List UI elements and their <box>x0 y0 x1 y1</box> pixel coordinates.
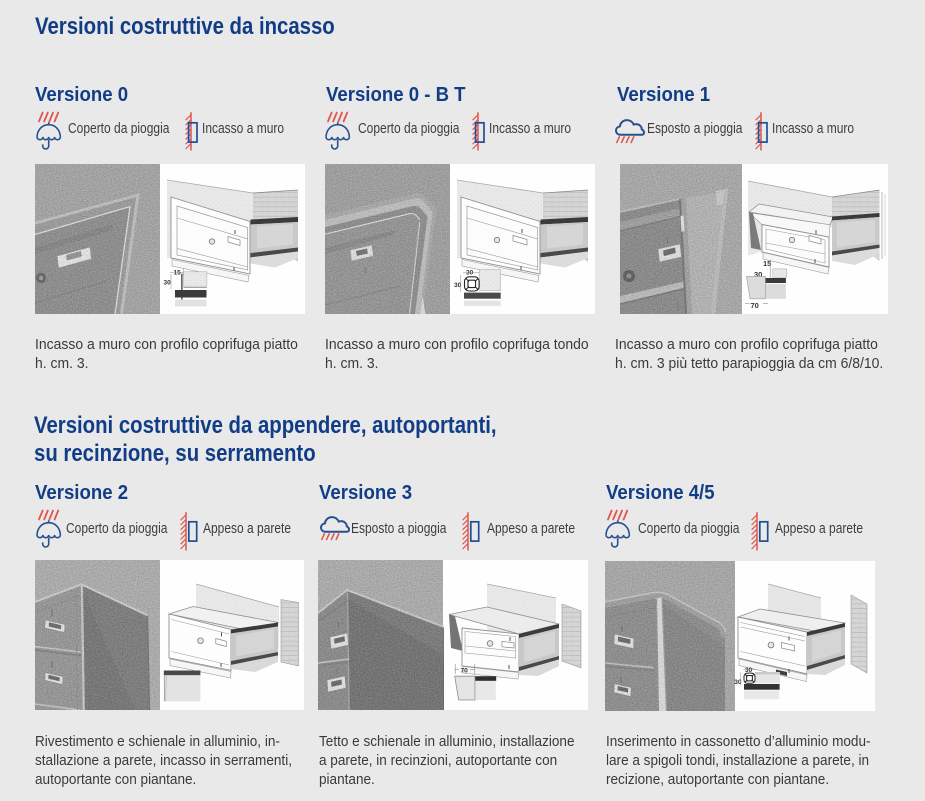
svg-text:15: 15 <box>174 270 182 277</box>
svg-text:70: 70 <box>751 301 759 310</box>
svg-text:70: 70 <box>461 668 469 675</box>
svg-text:30: 30 <box>164 280 172 287</box>
svg-text:30: 30 <box>466 270 474 277</box>
